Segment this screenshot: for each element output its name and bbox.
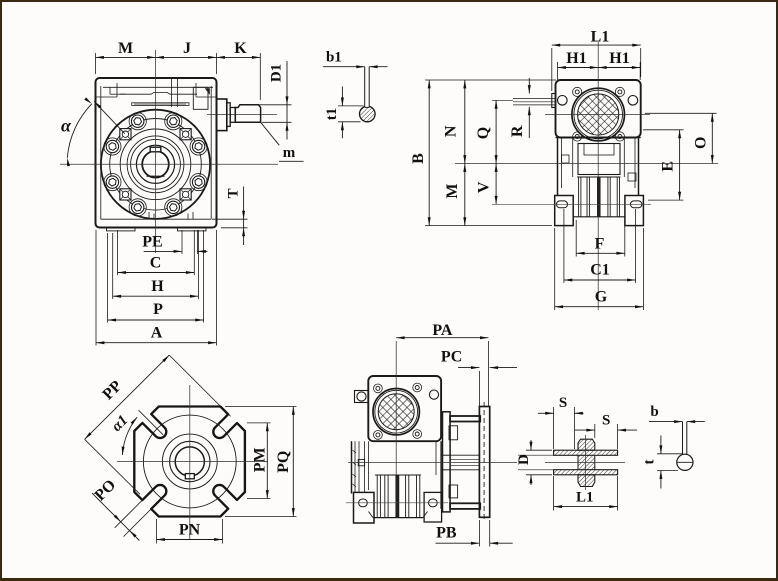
svg-text:A: A (151, 324, 163, 341)
svg-text:M: M (118, 40, 133, 57)
svg-text:PA: PA (432, 322, 453, 339)
svg-text:G: G (595, 288, 608, 305)
svg-text:K: K (234, 40, 247, 57)
svg-text:PC: PC (441, 348, 462, 365)
svg-text:α: α (61, 116, 72, 136)
svg-text:T: T (225, 188, 241, 198)
svg-text:Q: Q (475, 127, 492, 139)
svg-text:PN: PN (179, 521, 201, 538)
svg-text:O: O (693, 137, 710, 149)
svg-text:H1: H1 (566, 50, 586, 67)
svg-text:PQ: PQ (275, 451, 292, 473)
svg-text:E: E (660, 161, 677, 172)
svg-text:N: N (442, 125, 459, 137)
svg-text:J: J (183, 40, 191, 57)
svg-text:H: H (151, 278, 164, 295)
svg-text:H1: H1 (609, 50, 629, 67)
svg-text:b1: b1 (326, 50, 342, 66)
svg-text:L1: L1 (576, 489, 594, 505)
svg-text:L1: L1 (591, 28, 610, 45)
svg-text:P: P (153, 301, 163, 318)
svg-text:B: B (410, 153, 427, 164)
svg-text:PB: PB (436, 524, 457, 541)
svg-text:m: m (283, 145, 296, 161)
svg-text:PM: PM (252, 447, 269, 472)
svg-text:C: C (150, 254, 162, 271)
svg-text:S: S (559, 395, 567, 411)
svg-text:D: D (516, 454, 532, 465)
svg-text:PE: PE (142, 233, 162, 250)
svg-text:PP: PP (99, 377, 125, 403)
svg-text:V: V (476, 181, 493, 193)
svg-text:D1: D1 (268, 64, 284, 82)
svg-text:R: R (509, 125, 526, 137)
svg-text:F: F (595, 235, 605, 252)
svg-text:C1: C1 (590, 261, 610, 278)
svg-text:t: t (641, 460, 657, 465)
svg-text:b: b (650, 404, 658, 420)
svg-text:t1: t1 (324, 108, 340, 121)
svg-text:M: M (444, 183, 461, 198)
svg-text:PO: PO (92, 477, 120, 505)
svg-text:S: S (602, 412, 610, 428)
